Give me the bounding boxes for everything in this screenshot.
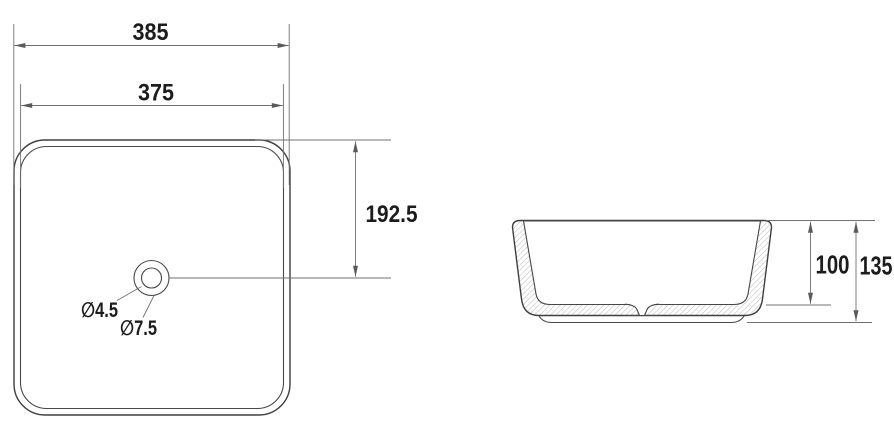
hole-large-diameter-label: ∅7.5 (120, 317, 157, 340)
side-view: 100 135 (513, 221, 893, 323)
dim-bowl-depth: 100 (811, 222, 850, 304)
leader-line (143, 296, 154, 318)
center-hole-inner-circle (142, 268, 162, 288)
dim-overall-height: 135 (856, 222, 893, 322)
dim-inner-width: 375 (21, 80, 284, 189)
top-view: 385 375 192.5 ∅4.5 ∅7.5 (14, 19, 418, 415)
basin-inner-rim-outline (21, 147, 284, 409)
dim-drain-center-offset: 192.5 (356, 141, 418, 277)
basin-technical-drawing: 385 375 192.5 ∅4.5 ∅7.5 (0, 0, 894, 423)
hole-small-diameter-label: ∅4.5 (81, 299, 118, 322)
base-foot-outline (539, 316, 744, 323)
dim-overall-width-label: 385 (133, 19, 169, 46)
basin-outer-outline (14, 140, 290, 415)
leader-line (117, 287, 142, 301)
drawing-canvas: 385 375 192.5 ∅4.5 ∅7.5 (0, 0, 894, 423)
center-hole-outer-circle (134, 261, 169, 296)
callout-hole-large: ∅7.5 (120, 296, 157, 341)
bowl-cavity (524, 221, 761, 305)
dim-overall-height-label: 135 (860, 251, 893, 281)
dim-bowl-depth-label: 100 (816, 250, 850, 280)
dim-drain-center-offset-label: 192.5 (366, 201, 418, 228)
dim-inner-width-label: 375 (138, 80, 174, 107)
